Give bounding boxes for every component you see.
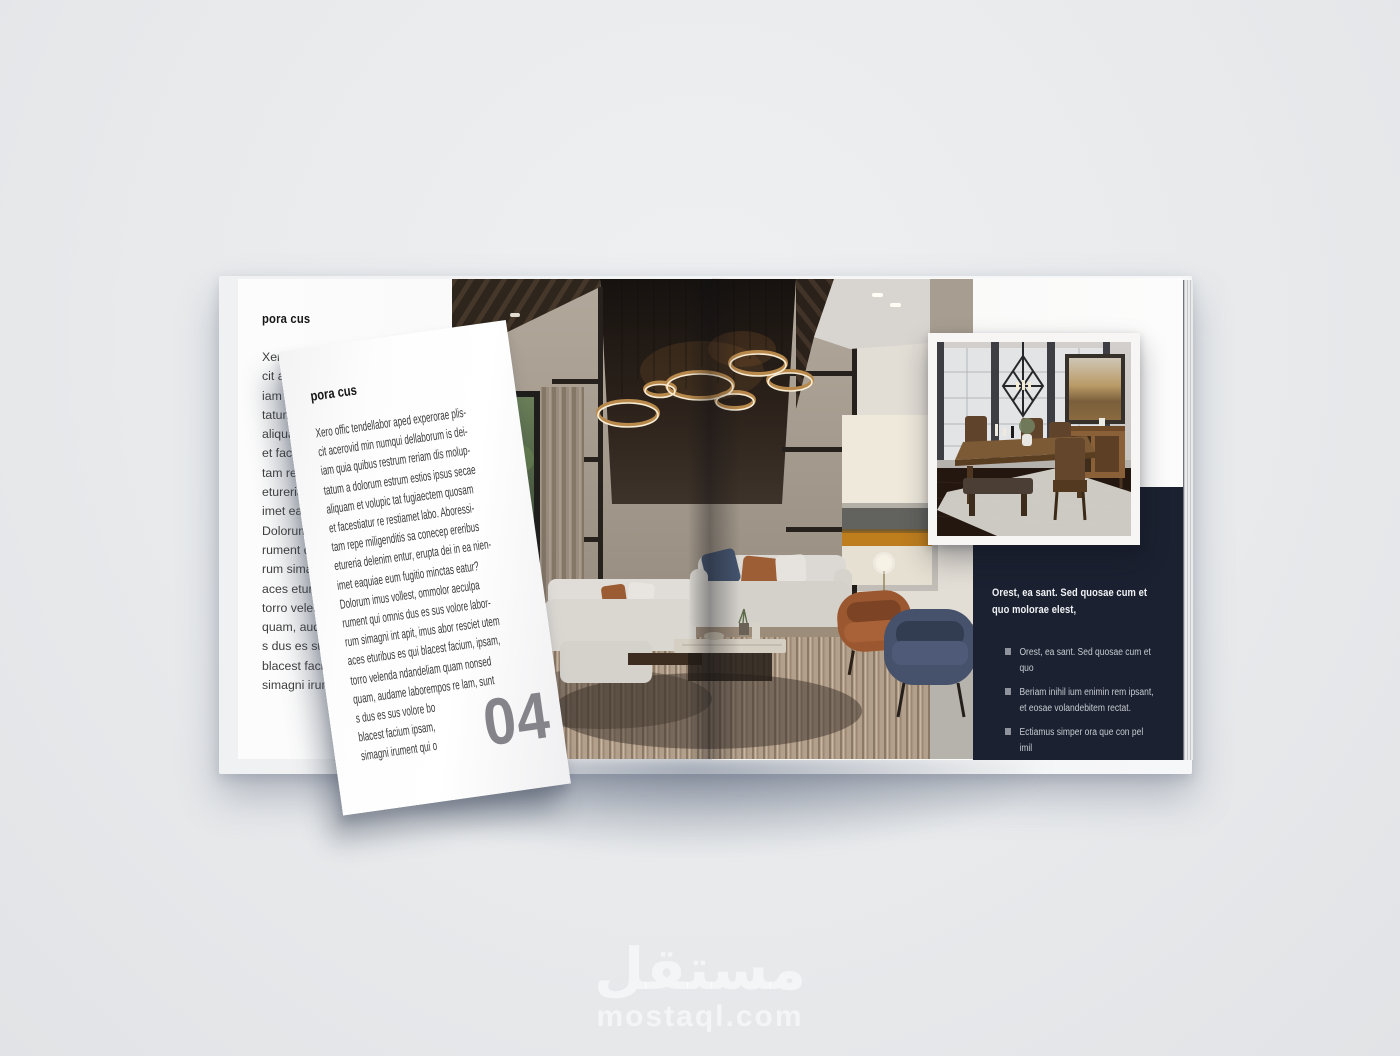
turning-page-heading: pora cus xyxy=(309,367,460,404)
bullet-item: Beriam inihil ium enimin rem ipsant, et … xyxy=(1005,685,1155,717)
page-number: 04 xyxy=(478,676,554,760)
page-stack-edge xyxy=(1183,280,1193,760)
watermark-domain: mostaql.com xyxy=(0,1000,1400,1034)
info-panel-bullet-list: Orest, ea sant. Sed quosae cum et quoBer… xyxy=(1005,645,1155,757)
watermark: مستقل mostaql.com xyxy=(0,940,1400,1034)
bullet-item: Ectiamus simper ora que con pel imil xyxy=(1005,725,1155,757)
landscape-painting xyxy=(1065,354,1125,424)
bullet-item: Orest, ea sant. Sed quosae cum et quo xyxy=(1005,645,1155,677)
brochure-mockup-scene: pora cus Xero offic tendellabor aped exp… xyxy=(0,0,1400,1056)
left-page-heading: pora cus xyxy=(262,312,460,326)
white-ceiling xyxy=(814,279,930,349)
watermark-arabic-logo: مستقل xyxy=(0,940,1400,998)
info-panel-heading: Orest, ea sant. Sed quosae cum et quo mo… xyxy=(992,585,1162,619)
book-gutter-shade xyxy=(688,279,740,759)
dining-room-illustration xyxy=(937,342,1131,536)
dining-room-photo-frame xyxy=(928,333,1140,545)
